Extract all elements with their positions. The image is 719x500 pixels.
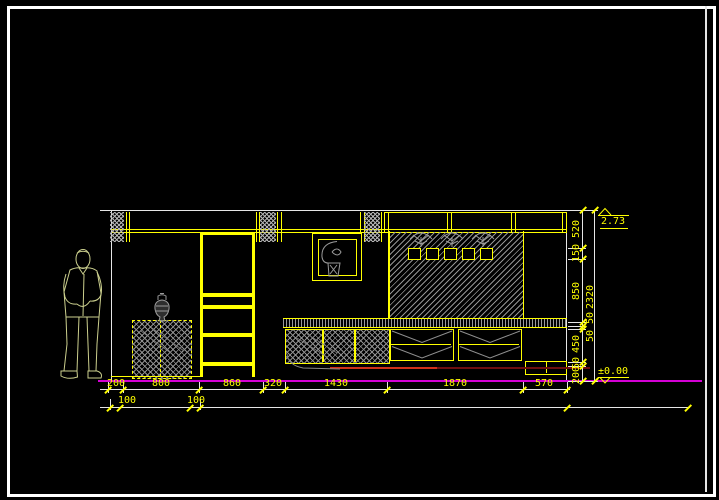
drawer-front-pattern xyxy=(392,331,520,358)
cad-drawing-canvas: 200 800 860 320 1430 1870 570 100 100 52… xyxy=(0,0,719,500)
picture-art xyxy=(322,242,341,277)
level-triangle-icon xyxy=(599,209,611,384)
spray-symbols xyxy=(410,233,494,247)
cable-curve xyxy=(287,354,340,369)
person-figure xyxy=(61,250,102,379)
vase xyxy=(155,294,169,322)
reflection-streaks xyxy=(141,328,337,357)
line-art-overlay xyxy=(0,0,719,500)
